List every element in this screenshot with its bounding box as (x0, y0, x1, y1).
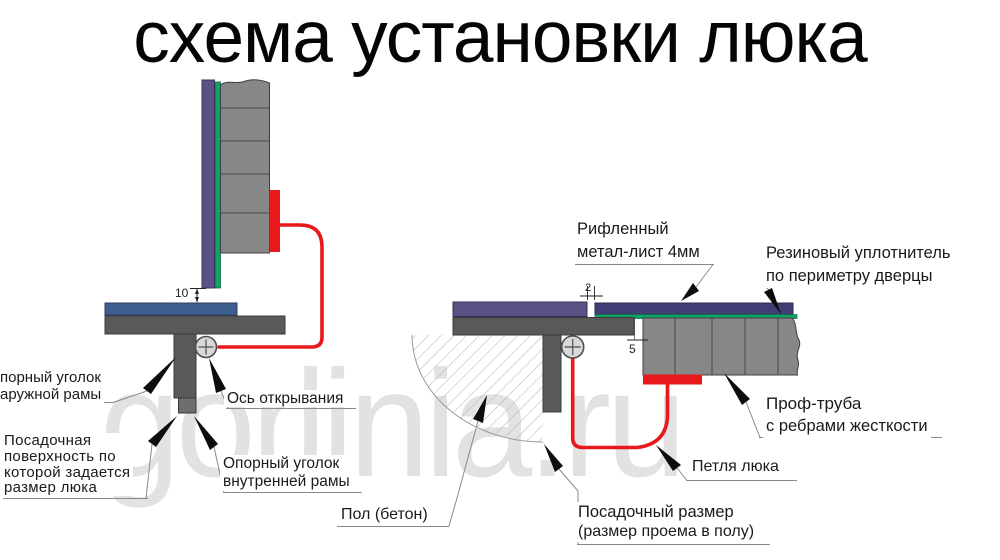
dim-10-graphics (190, 289, 206, 303)
label-rubber-seal: Резиновый уплотнитель по периметру дверц… (763, 242, 954, 288)
dim-2-label: 2 (585, 282, 591, 294)
concrete-hatch-region (412, 335, 543, 442)
dim-5-label: 5 (629, 343, 636, 355)
label-outer-angle: порный уголок аружной рамы (0, 369, 104, 403)
label-opening-axis: Ось открывания (224, 390, 346, 407)
frame-stem (174, 334, 196, 398)
outer-frame-sheet-vertical (202, 80, 215, 288)
pivot-axis-icon-right (562, 336, 584, 358)
label-ribbed-sheet: Рифленный метал-лист 4мм (574, 218, 703, 264)
profile-tube-block-right (643, 318, 800, 375)
label-seat-size: Посадочный размер (размер проема в полу) (575, 502, 757, 542)
dim-2-graphics (580, 286, 603, 300)
profile-tube-block-left (221, 80, 270, 253)
frame-stem-right (543, 335, 561, 412)
inner-frame-angle (179, 398, 197, 413)
pivot-axis-icon (196, 337, 217, 358)
label-inner-angle: Опорный уголок внутренней рамы (220, 455, 353, 491)
outer-frame-angle (105, 316, 285, 334)
hinge-plate-right (643, 375, 702, 385)
seat-plate-blue (105, 303, 237, 315)
hinge-plate-left (270, 190, 281, 252)
outer-frame-sheet-top (453, 302, 587, 317)
diagram-page: gorlinia.ru (0, 0, 1000, 560)
outer-frame-angle-right (453, 318, 634, 336)
label-profile-tube: Проф-труба с ребрами жесткости (763, 392, 931, 438)
ribbed-metal-sheet (595, 303, 793, 315)
label-hatch-hinge: Петля люка (689, 458, 782, 476)
seal-strip-vertical (216, 82, 221, 288)
left-view (105, 80, 322, 413)
label-seating-surface: Посадочная поверхность по которой задает… (1, 433, 133, 496)
label-floor-concrete: Пол (бетон) (338, 506, 431, 524)
dim-10-label: 10 (175, 287, 188, 299)
